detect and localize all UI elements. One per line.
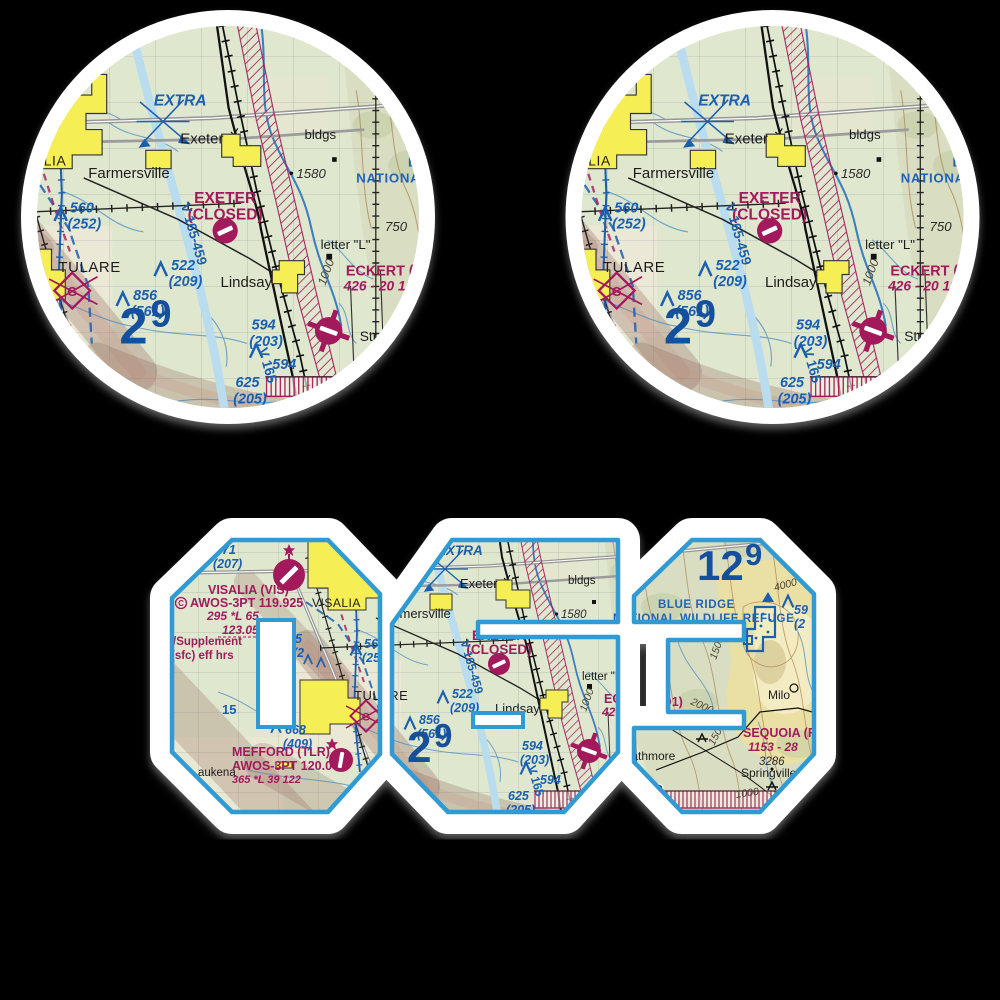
sticker-sheet-svg: C [0, 0, 1000, 1000]
sticker-sheet: C [0, 0, 1000, 1000]
digit-0-counter [258, 620, 294, 727]
digit-6-counter [473, 713, 523, 727]
